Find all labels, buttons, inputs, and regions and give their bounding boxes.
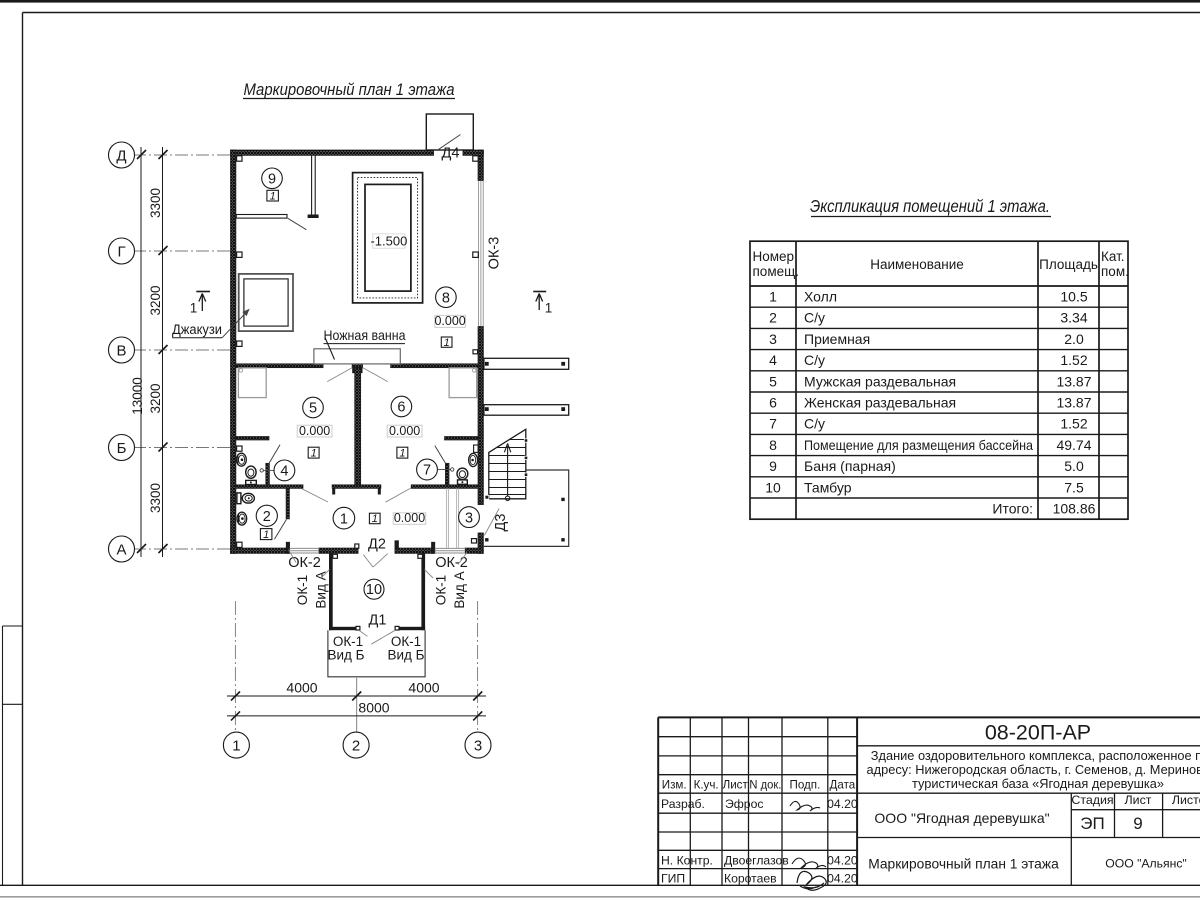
svg-text:4000: 4000: [286, 680, 317, 696]
svg-text:1: 1: [311, 447, 317, 459]
svg-text:3200: 3200: [148, 383, 163, 413]
svg-text:Площадь: Площадь: [1039, 257, 1098, 272]
svg-text:9: 9: [268, 172, 276, 188]
svg-text:Вид Б: Вид Б: [387, 648, 424, 663]
svg-text:108.86: 108.86: [1053, 501, 1096, 517]
svg-text:1: 1: [444, 337, 450, 349]
svg-text:4: 4: [769, 352, 777, 368]
svg-text:1: 1: [263, 529, 269, 541]
svg-text:9: 9: [1133, 814, 1142, 833]
svg-text:Б: Б: [117, 440, 127, 457]
svg-text:Коротаев: Коротаев: [724, 872, 777, 886]
svg-text:Кат.: Кат.: [1101, 249, 1125, 264]
svg-text:Приемная: Приемная: [804, 331, 870, 347]
svg-text:ГИП: ГИП: [661, 872, 685, 886]
svg-text:49.74: 49.74: [1056, 437, 1091, 453]
svg-text:6: 6: [769, 395, 777, 411]
svg-text:Женская раздевальная: Женская раздевальная: [804, 395, 956, 411]
svg-text:Листов: Листов: [1172, 793, 1200, 807]
svg-text:Мужская раздевальная: Мужская раздевальная: [804, 373, 956, 389]
svg-text:ОК-1: ОК-1: [434, 575, 449, 605]
svg-text:1: 1: [190, 301, 198, 316]
svg-text:3: 3: [465, 510, 473, 526]
svg-text:2: 2: [263, 509, 271, 525]
svg-text:1.52: 1.52: [1060, 416, 1087, 432]
svg-text:1: 1: [270, 191, 276, 203]
svg-text:04.20: 04.20: [827, 797, 858, 811]
svg-text:N док.: N док.: [749, 779, 781, 792]
svg-text:3300: 3300: [148, 188, 163, 218]
svg-text:адресу: Нижегородская область,: адресу: Нижегородская область, г. Семено…: [867, 762, 1200, 777]
svg-text:13.87: 13.87: [1056, 395, 1091, 411]
svg-text:8: 8: [442, 290, 450, 306]
svg-text:Подп.: Подп.: [790, 779, 821, 792]
svg-text:Стадия: Стадия: [1071, 793, 1113, 807]
svg-text:ООО "Ягодная деревушка": ООО "Ягодная деревушка": [874, 810, 1049, 826]
svg-text:Д2: Д2: [368, 537, 386, 553]
svg-text:Вид А: Вид А: [314, 571, 329, 608]
svg-text:Наименование: Наименование: [870, 257, 964, 272]
svg-text:Вид А: Вид А: [452, 571, 467, 608]
svg-text:1: 1: [545, 301, 553, 316]
svg-text:С/у: С/у: [804, 416, 825, 432]
svg-text:Баня (парная): Баня (парная): [804, 458, 896, 474]
svg-text:10: 10: [765, 479, 781, 495]
svg-text:2: 2: [352, 738, 360, 755]
svg-text:0.000: 0.000: [389, 424, 420, 438]
svg-text:1: 1: [232, 738, 240, 755]
svg-text:С/у: С/у: [804, 352, 825, 368]
svg-text:Экспликация помещений 1 этажа.: Экспликация помещений 1 этажа.: [810, 196, 1050, 216]
svg-text:С/у: С/у: [804, 310, 825, 326]
svg-text:Вид Б: Вид Б: [327, 648, 364, 663]
svg-text:Маркировочный план 1 этажа: Маркировочный план 1 этажа: [868, 857, 1059, 872]
svg-text:6: 6: [397, 400, 405, 416]
svg-text:13.87: 13.87: [1056, 373, 1091, 389]
svg-text:1: 1: [769, 289, 777, 305]
svg-text:8: 8: [769, 437, 777, 453]
svg-text:ОК-3: ОК-3: [487, 237, 503, 270]
svg-text:ЭП: ЭП: [1080, 814, 1104, 833]
svg-text:4000: 4000: [408, 680, 439, 696]
svg-text:ООО "Альянс": ООО "Альянс": [1105, 857, 1187, 871]
svg-text:7: 7: [769, 416, 777, 432]
svg-text:Тамбур: Тамбур: [804, 479, 852, 495]
svg-text:Эфрос: Эфрос: [725, 797, 763, 811]
svg-text:04.20: 04.20: [827, 872, 858, 886]
svg-text:0.000: 0.000: [299, 424, 330, 438]
svg-text:Маркировочный план 1 этажа: Маркировочный план 1 этажа: [244, 81, 455, 99]
svg-text:3: 3: [769, 331, 777, 347]
svg-text:5.0: 5.0: [1064, 458, 1084, 474]
svg-text:В: В: [116, 343, 126, 360]
svg-text:Холл: Холл: [804, 289, 837, 305]
svg-text:2.0: 2.0: [1064, 331, 1084, 347]
svg-text:Разраб.: Разраб.: [661, 797, 705, 811]
svg-text:5: 5: [769, 373, 777, 389]
svg-text:Ножная ванна: Ножная ванна: [324, 327, 406, 343]
svg-text:туристическая база «Ягодная де: туристическая база «Ягодная деревушка»: [912, 776, 1164, 791]
svg-text:7: 7: [423, 463, 431, 479]
svg-text:04.20: 04.20: [827, 854, 858, 868]
svg-text:Помещение для размещения бассе: Помещение для размещения бассейна: [804, 437, 1033, 453]
svg-text:0.000: 0.000: [394, 511, 425, 525]
svg-text:08-20П-АР: 08-20П-АР: [985, 721, 1091, 745]
svg-text:Двоеглазов: Двоеглазов: [724, 854, 789, 868]
svg-text:-1.500: -1.500: [370, 234, 407, 249]
svg-text:помещ.: помещ.: [753, 264, 799, 279]
svg-text:3.34: 3.34: [1060, 310, 1087, 326]
svg-text:А: А: [116, 542, 126, 559]
svg-text:13000: 13000: [130, 377, 145, 415]
svg-text:2: 2: [769, 310, 777, 326]
svg-text:1: 1: [340, 511, 348, 527]
svg-text:Г: Г: [117, 244, 125, 261]
svg-text:Номер: Номер: [753, 249, 795, 264]
svg-text:3200: 3200: [148, 285, 163, 315]
svg-text:Лист: Лист: [723, 779, 749, 792]
svg-text:9: 9: [769, 458, 777, 474]
svg-text:Н. Контр.: Н. Контр.: [661, 854, 713, 868]
svg-text:5: 5: [309, 401, 317, 417]
svg-text:Изм.: Изм.: [662, 779, 687, 792]
svg-text:К.уч.: К.уч.: [694, 779, 719, 792]
svg-text:Д4: Д4: [442, 146, 460, 162]
svg-text:7.5: 7.5: [1064, 479, 1084, 495]
svg-text:Итого:: Итого:: [992, 501, 1033, 517]
svg-text:Здание оздоровительного компле: Здание оздоровительного комплекса, распо…: [871, 748, 1200, 763]
svg-text:Лист: Лист: [1125, 793, 1152, 807]
svg-text:Д: Д: [116, 148, 126, 165]
svg-text:Джакузи: Джакузи: [172, 322, 222, 337]
svg-text:10.5: 10.5: [1060, 289, 1087, 305]
svg-text:ОК-1: ОК-1: [295, 575, 310, 605]
svg-text:4: 4: [280, 464, 288, 480]
svg-text:Дата: Дата: [830, 779, 856, 792]
svg-text:3: 3: [474, 738, 482, 755]
svg-text:1: 1: [372, 513, 378, 525]
svg-text:10: 10: [366, 582, 382, 598]
svg-text:пом.: пом.: [1101, 264, 1129, 279]
svg-text:1.52: 1.52: [1060, 352, 1087, 368]
svg-text:3300: 3300: [148, 483, 163, 513]
svg-text:8000: 8000: [358, 700, 389, 716]
svg-text:Д1: Д1: [369, 613, 387, 629]
svg-text:1: 1: [399, 447, 405, 459]
svg-text:0.000: 0.000: [434, 314, 465, 328]
